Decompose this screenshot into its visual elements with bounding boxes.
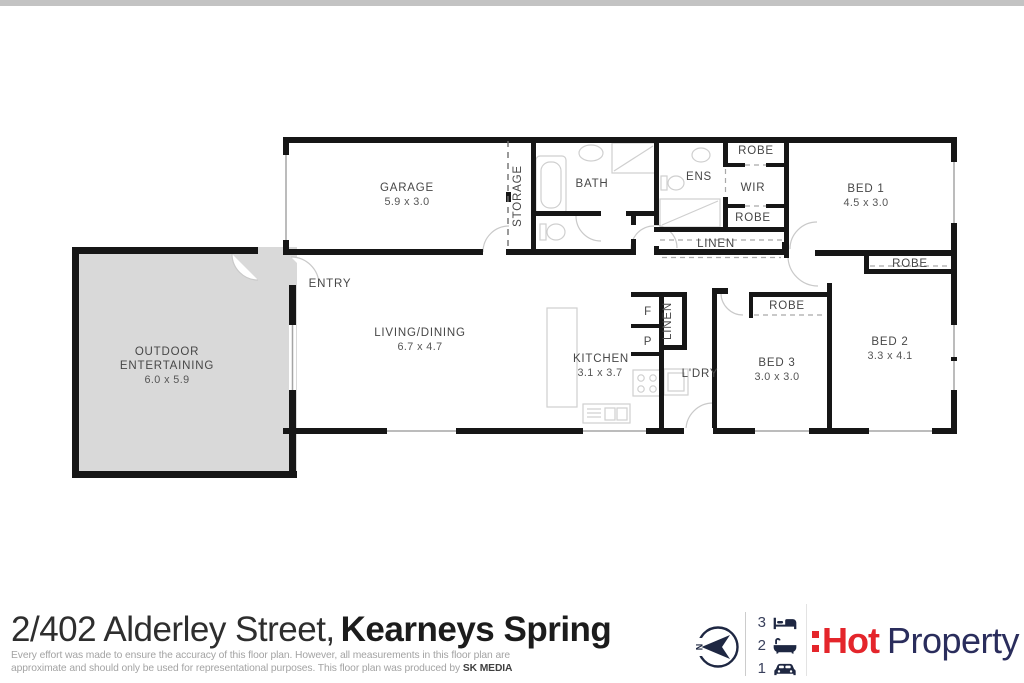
car-icon — [771, 660, 799, 677]
room-dims-garage: 5.9 x 3.0 — [384, 196, 429, 208]
room-dims-outdoor: 6.0 x 5.9 — [144, 374, 189, 386]
room-label-wir: WIR — [741, 182, 766, 194]
compass-needle — [702, 635, 731, 659]
room-dims-bed1: 4.5 x 3.0 — [843, 197, 888, 209]
feature-beds: 3 — [752, 611, 799, 633]
room-label-robe-bed2: ROBE — [892, 258, 928, 270]
feature-counts: 3 2 1 — [752, 611, 799, 680]
room-label-entry: ENTRY — [309, 278, 352, 290]
disclaimer-text: Every effort was made to ensure the accu… — [11, 649, 551, 676]
room-label-bed1: BED 1 — [847, 183, 884, 195]
footer-divider-vertical-2 — [806, 604, 807, 676]
bed-icon — [771, 614, 799, 631]
bed2-door-arc — [788, 256, 818, 286]
room-label-pantry: P — [644, 336, 652, 348]
address-street: 2/402 Alderley Street, — [11, 610, 335, 649]
compass-icon: N — [694, 623, 742, 671]
beds-count: 3 — [752, 614, 766, 631]
baths-count: 2 — [752, 637, 766, 654]
room-label-linen-kitchen: LINEN — [662, 302, 674, 340]
address-title: 2/402 Alderley Street,Kearneys Spring — [11, 610, 611, 650]
room-label-kitchen: KITCHEN — [573, 353, 629, 365]
wc-door-arc — [576, 216, 601, 241]
room-label-robe-bottom: ROBE — [735, 212, 771, 224]
address-suburb: Kearneys Spring — [341, 610, 612, 649]
room-label-ens: ENS — [686, 171, 712, 183]
room-label-linen-hall: LINEN — [697, 238, 735, 250]
bath-icon — [771, 637, 799, 654]
logo-colon-mark — [812, 627, 819, 655]
room-dims-bed2: 3.3 x 4.1 — [867, 350, 912, 362]
room-label-living: LIVING/DINING — [374, 327, 466, 339]
floor-plan: GARAGE 5.9 x 3.0 STORAGE BATH ENS WIR RO… — [0, 0, 1024, 600]
back-door-arc — [686, 403, 713, 430]
ens-toilet — [661, 176, 667, 190]
room-label-outdoor-2: ENTERTAINING — [120, 360, 214, 372]
room-label-outdoor-1: OUTDOOR — [135, 346, 199, 358]
ens-basin — [692, 148, 710, 162]
floorplan-page: { "plan": { "garage_name": "GARAGE", "ga… — [0, 0, 1024, 683]
feature-cars: 1 — [752, 657, 799, 679]
room-label-laundry: L'DRY — [682, 368, 719, 380]
cars-count: 1 — [752, 660, 766, 677]
producer-name: SK MEDIA — [463, 663, 513, 674]
disclaimer-line-2: approximate and should only be used for … — [11, 663, 460, 674]
wc-toilet — [540, 224, 546, 240]
room-label-fridge: F — [644, 306, 652, 318]
feature-baths: 2 — [752, 634, 799, 656]
disclaimer-line-1: Every effort was made to ensure the accu… — [11, 650, 510, 661]
room-label-bed2: BED 2 — [871, 336, 908, 348]
room-label-storage: STORAGE — [512, 165, 524, 227]
compass-north-label: N — [695, 644, 705, 651]
room-label-bath: BATH — [575, 178, 608, 190]
logo-hot-text: Hot — [822, 620, 879, 662]
room-dims-living: 6.7 x 4.7 — [397, 341, 442, 353]
room-label-garage: GARAGE — [380, 182, 434, 194]
room-label-robe-top: ROBE — [738, 145, 774, 157]
room-dims-bed3: 3.0 x 3.0 — [754, 371, 799, 383]
room-label-robe-bed3: ROBE — [769, 300, 805, 312]
room-dims-kitchen: 3.1 x 3.7 — [577, 367, 622, 379]
room-label-bed3: BED 3 — [758, 357, 795, 369]
footer-divider-vertical-1 — [745, 612, 746, 676]
hot-property-logo: Hot Property — [812, 617, 1019, 665]
cooktop — [633, 370, 660, 396]
logo-property-text: Property — [887, 620, 1019, 662]
bed1-door-arc — [790, 222, 817, 249]
bottom-bar — [0, 0, 1024, 6]
bath-basin — [579, 145, 603, 161]
garage-door-arc — [483, 226, 509, 252]
bed3-door-arc — [721, 293, 743, 315]
fixtures — [536, 143, 720, 423]
